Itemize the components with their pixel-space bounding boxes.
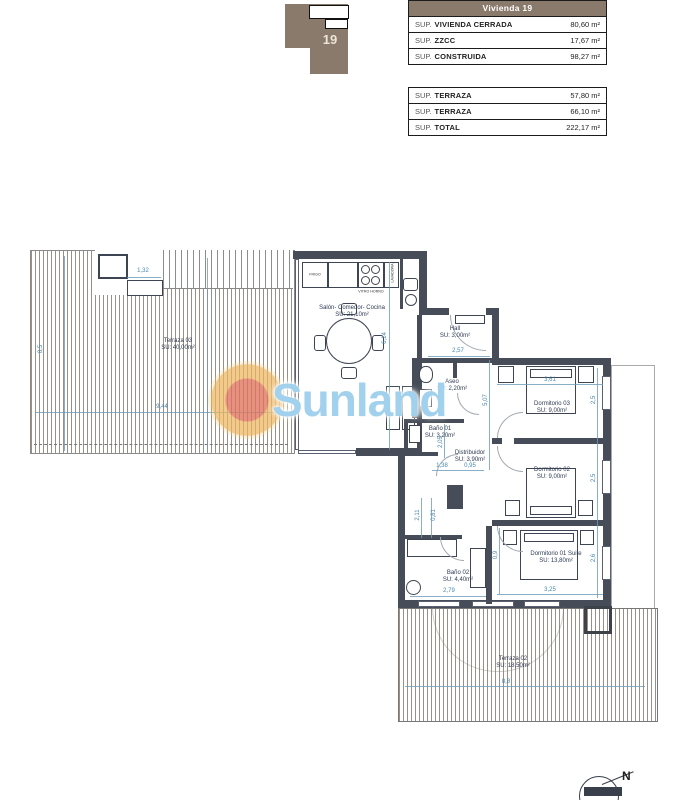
room-label-salon: Salón- Comedor- Cocina SU: 21,10m² [319,304,385,320]
wall [404,452,438,456]
table-row: SUP.TOTAL 222,17 m² [409,120,606,135]
dim-label: 2,5 [591,396,597,404]
terrace-03-pergola-grid [202,312,292,450]
chair [341,367,357,379]
window-east [602,460,611,494]
hob-burners-icon [361,265,379,285]
room-label-dorm03: Dormitorio 03 SU: 9,00m² [534,400,570,416]
utility-fixture-2 [405,294,417,306]
terrace-planter [584,606,612,634]
window-living-south [298,450,356,454]
compass-arrow-icon [584,787,622,796]
dim-label: 2,79 [443,588,455,594]
dim-line [428,356,490,357]
dim-line [421,498,422,538]
nightstand [498,366,514,383]
terrace-step [127,280,163,296]
terrace-03-edge-dashed [34,444,288,445]
door-swing-bano02 [440,537,464,561]
dim-line [36,412,288,413]
dim-label: 2,5 [591,474,597,482]
dim-line [499,528,500,594]
wall [486,308,499,315]
dim-line [597,368,598,598]
wall [419,308,449,315]
nightstand [578,366,594,383]
key-plan-neighbor-unit [309,5,349,19]
compass-north-label: N [622,769,631,783]
nightstand [580,530,594,545]
dim-line [410,596,486,597]
terrace-03-pergola-band [163,250,293,289]
nightstand [578,500,593,516]
table-row: SUP.VIVIENDA CERRADA 80,60 m² [409,17,606,33]
table-row: SUP.CONSTRUIDA 98,27 m² [409,49,606,64]
window-east [602,376,611,410]
dim-line [64,256,65,451]
floorplan-sheet: 19 Vivienda 19 SUP.VIVIENDA CERRADA 80,6… [0,0,677,800]
wall [453,358,457,378]
sink [419,389,432,407]
dim-label: 0,81 [431,509,437,521]
window-east [602,546,611,580]
wall [293,251,427,259]
hob-label: VITRO HORNO [358,290,383,294]
wall [398,452,405,608]
chair [314,335,326,351]
table-row: SUP.TERRAZA 66,10 m² [409,104,606,120]
dim-label: 6,14 [382,332,388,344]
dim-line [389,262,390,450]
room-label-aseo: Aseo SU: 2,20m² [437,378,467,394]
table-row: SUP.ZZCC 17,67 m² [409,33,606,49]
key-plan-neighbor-unit-2 [325,19,348,29]
bed-pillow [524,533,574,542]
dim-line [432,470,484,471]
dim-line [127,277,161,278]
side-terrace-strip [611,365,655,610]
dim-label: 2,57 [452,348,464,354]
washer-label: LAVADORA [391,263,395,282]
nightstand [505,500,520,516]
key-plan-shape-lower [310,48,348,74]
dim-label: 5,07 [483,394,489,406]
entrance-mat [455,315,485,324]
dim-label: 2,6 [591,554,597,562]
wall [412,358,417,418]
wall [404,419,408,456]
kitchen-counter [328,262,358,288]
dim-line [405,686,645,687]
room-label-terraza03: Terraza 03 SU: 40,00m² [161,337,195,353]
dim-label: 0,95 [464,463,476,469]
room-label-dorm02: Dormitorio 02 SU: 9,00m² [534,466,570,482]
area-table-terraces: SUP.TERRAZA 57,80 m² SUP.TERRAZA 66,10 m… [408,87,607,136]
dim-label: 3,25 [544,587,556,593]
wall [492,358,611,365]
table-row: SUP.TERRAZA 57,80 m² [409,88,606,104]
dim-line [489,360,490,470]
dim-label: 2,05 [438,436,444,448]
dim-label: 8,5 [38,345,44,353]
wall [419,251,427,315]
dining-table [326,318,372,364]
dim-label: 2,11 [415,509,421,520]
toilet [406,580,421,595]
dim-line [497,594,603,595]
room-label-dorm01: Dormitorio 01 Suite SU: 13,80m² [530,550,581,566]
dim-label: 1,32 [137,268,149,274]
wall [447,485,463,509]
dim-line [497,384,603,385]
room-label-terraza02: Terraza 02 SU: 18,50m² [496,655,530,671]
dim-label: 0,9 [493,551,499,559]
door-swing-dorm03 [497,412,523,438]
wall [492,438,502,444]
toilet [419,366,433,383]
dim-line [207,258,208,451]
planter-box [98,254,128,279]
key-plan-unit-number: 19 [318,32,342,47]
table-header: Vivienda 19 [409,1,606,17]
dim-label: 1,38 [436,463,448,469]
door-swing-dorm02 [497,446,523,472]
sink [409,425,421,443]
wall [486,526,492,604]
bed-pillow [530,506,572,515]
room-label-hall: Hall SU: 3,00m² [440,325,470,341]
door-swing-dorm01 [497,526,523,552]
fridge-label: FRIGO [309,273,320,277]
wall [514,438,605,444]
area-table-main: Vivienda 19 SUP.VIVIENDA CERRADA 80,60 m… [408,0,607,65]
window-living-west [295,259,299,450]
door-swing-aseo [457,393,479,415]
wall [404,419,464,423]
room-label-bano02: Baño 02 SU: 4,40m² [443,569,473,585]
utility-fixture [403,278,418,291]
dim-label: 9,44 [156,404,168,410]
dim-label: 8,8 [502,679,510,685]
dim-label: 3,61 [544,377,556,383]
